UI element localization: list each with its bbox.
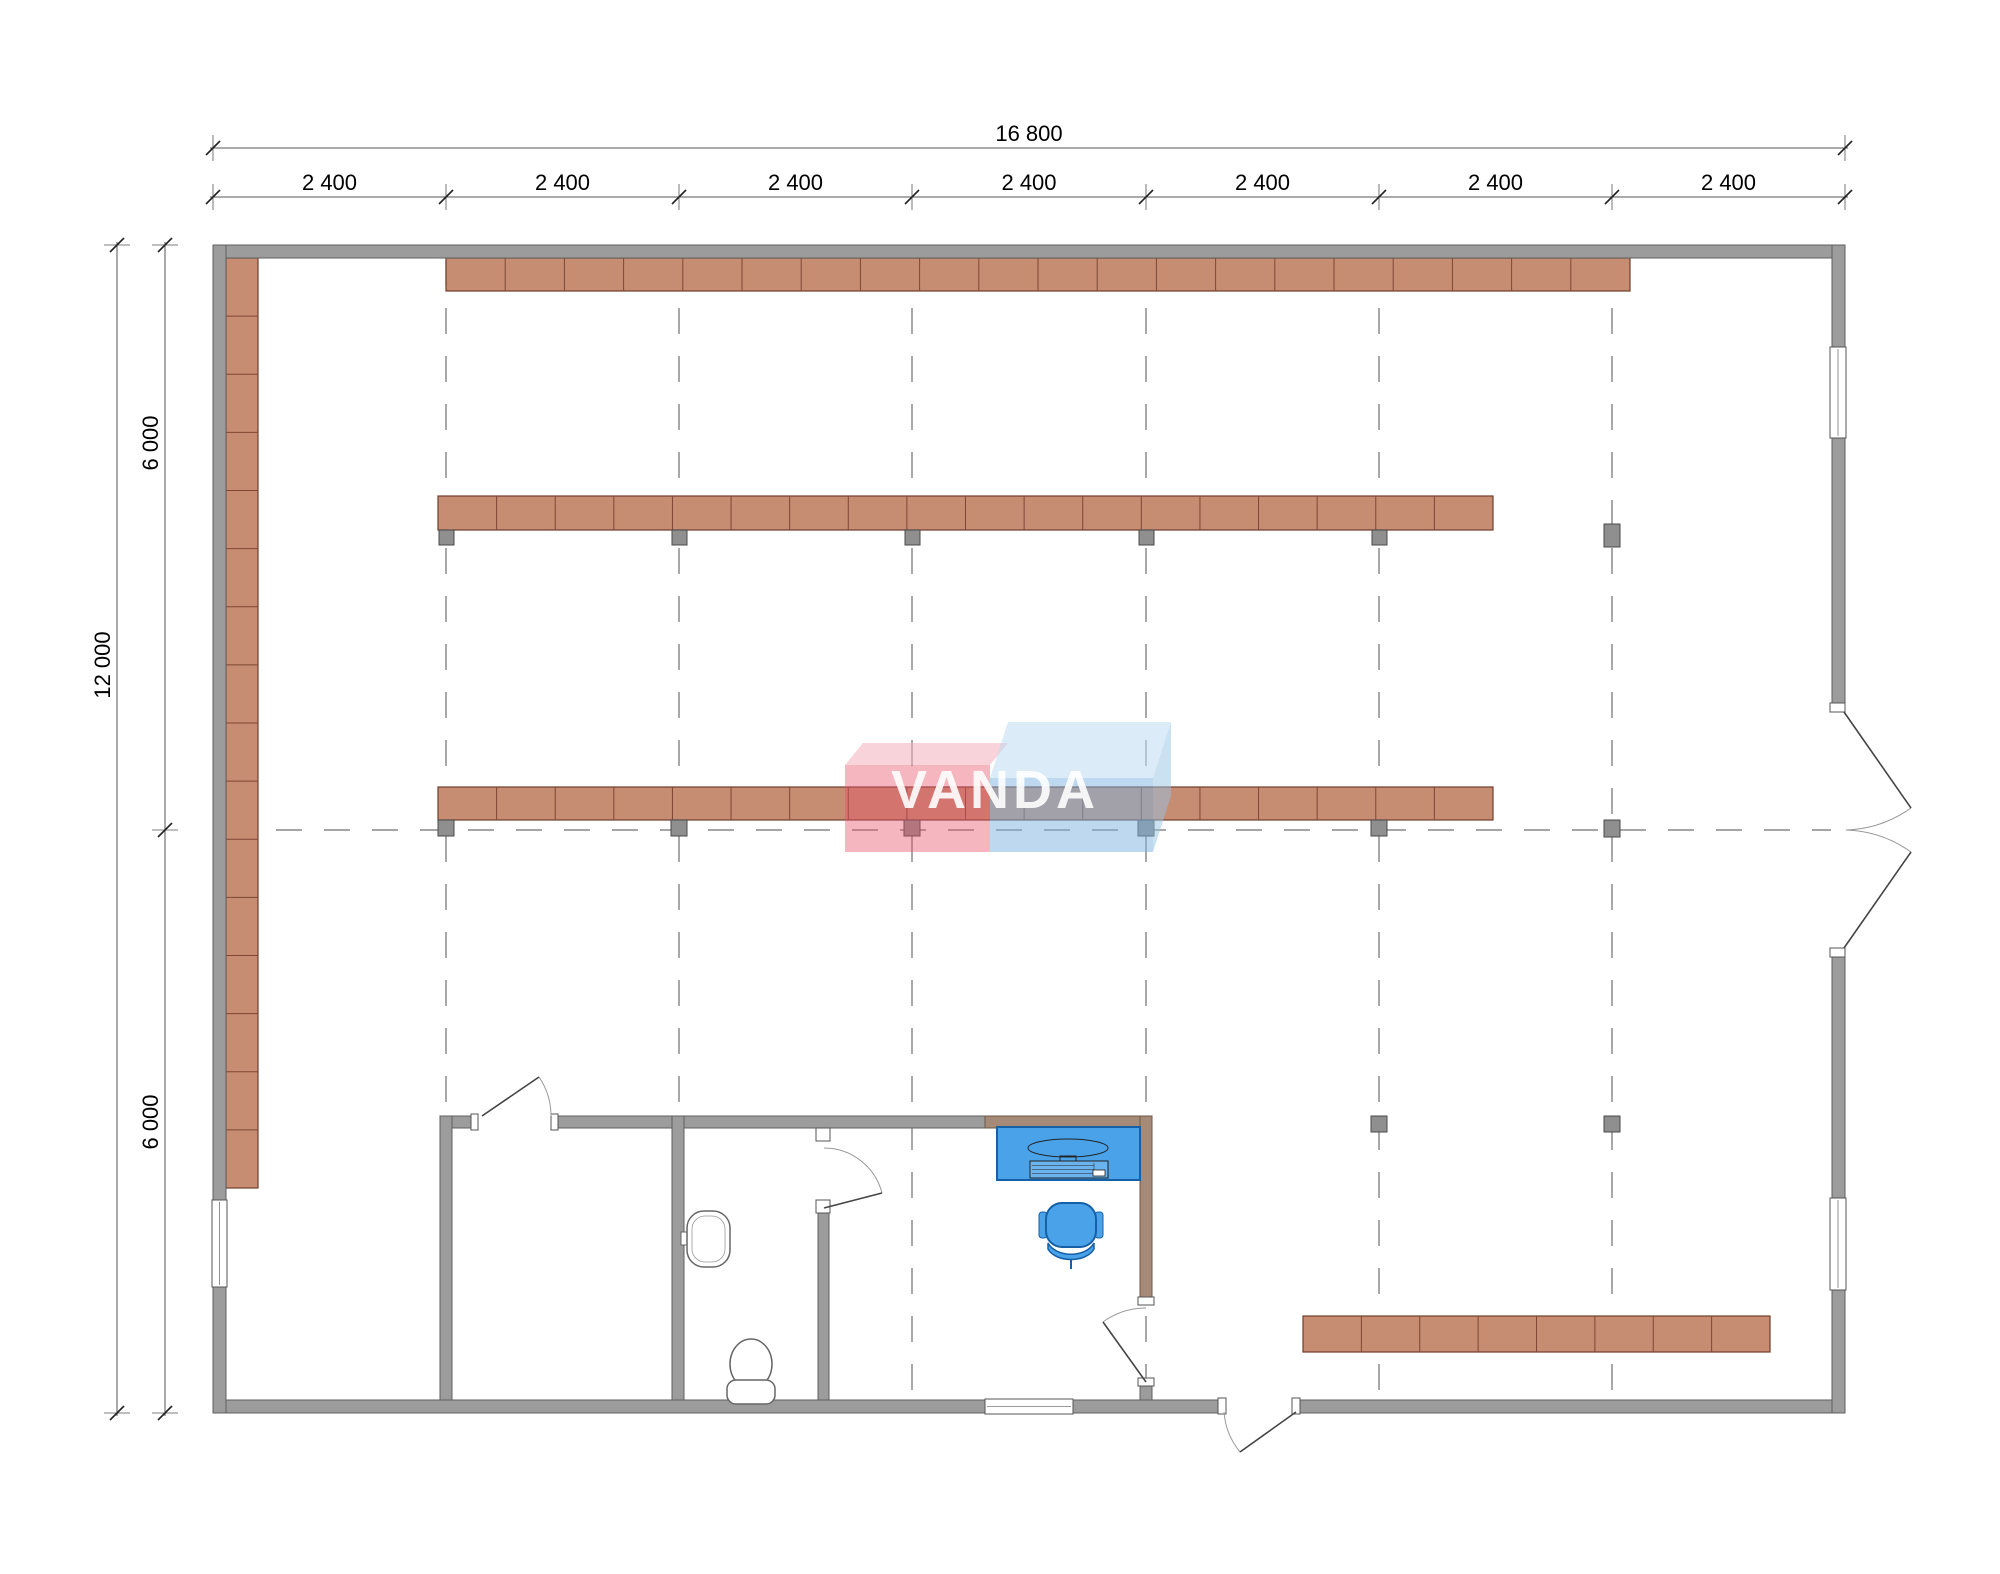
structural-column <box>671 820 687 836</box>
structural-column <box>905 530 920 545</box>
room-b-left-wall <box>672 1116 684 1400</box>
office-right-wall-stub <box>1140 1386 1152 1400</box>
structural-column <box>1604 524 1620 547</box>
office-right-wall <box>1140 1116 1152 1297</box>
door-frame <box>471 1114 478 1130</box>
door-frame <box>1218 1398 1226 1414</box>
toilet-base <box>727 1380 775 1404</box>
dimension-label: 12 000 <box>90 631 115 698</box>
dimension-label: 16 800 <box>995 121 1062 146</box>
door-frame <box>1830 703 1845 712</box>
dimension-label: 2 400 <box>768 170 823 195</box>
structural-column <box>672 530 687 545</box>
watermark-text: VANDA <box>891 760 1099 820</box>
floor-plan-svg: VANDA16 8002 4002 4002 4002 4002 4002 40… <box>0 0 2000 1574</box>
structural-column <box>1371 1116 1387 1132</box>
outer-wall-top <box>213 245 1845 258</box>
room-a-left-wall <box>440 1116 452 1400</box>
door-frame <box>1292 1398 1300 1414</box>
structural-column <box>1371 820 1387 836</box>
floor-plan-canvas: VANDA16 8002 4002 4002 4002 4002 4002 40… <box>0 0 2000 1574</box>
structural-column <box>439 530 454 545</box>
floor-plan-page: VANDA16 8002 4002 4002 4002 4002 4002 40… <box>0 0 2000 1574</box>
door-opening <box>1225 1399 1293 1414</box>
room-b-right-wall <box>818 1213 829 1400</box>
door-opening <box>1831 712 1846 948</box>
dimension-label: 2 400 <box>1001 170 1056 195</box>
dimension-label: 6 000 <box>138 1094 163 1149</box>
dimension-label: 2 400 <box>1235 170 1290 195</box>
door-frame <box>816 1128 830 1141</box>
structural-column <box>1604 1116 1620 1132</box>
dimension-label: 2 400 <box>535 170 590 195</box>
door-frame <box>1830 948 1845 957</box>
chair-seat <box>1046 1203 1096 1247</box>
dimension-label: 2 400 <box>1468 170 1523 195</box>
door-frame <box>551 1114 558 1130</box>
dimension-label: 6 000 <box>138 415 163 470</box>
sink <box>687 1211 730 1267</box>
structural-column <box>1604 820 1620 837</box>
structural-column <box>1372 530 1387 545</box>
mouse <box>1093 1170 1105 1176</box>
structural-column <box>438 820 454 836</box>
dimension-label: 2 400 <box>302 170 357 195</box>
structural-column <box>1139 530 1154 545</box>
door-frame <box>1138 1297 1154 1305</box>
dimension-label: 2 400 <box>1701 170 1756 195</box>
partition-top-b <box>551 1116 985 1128</box>
